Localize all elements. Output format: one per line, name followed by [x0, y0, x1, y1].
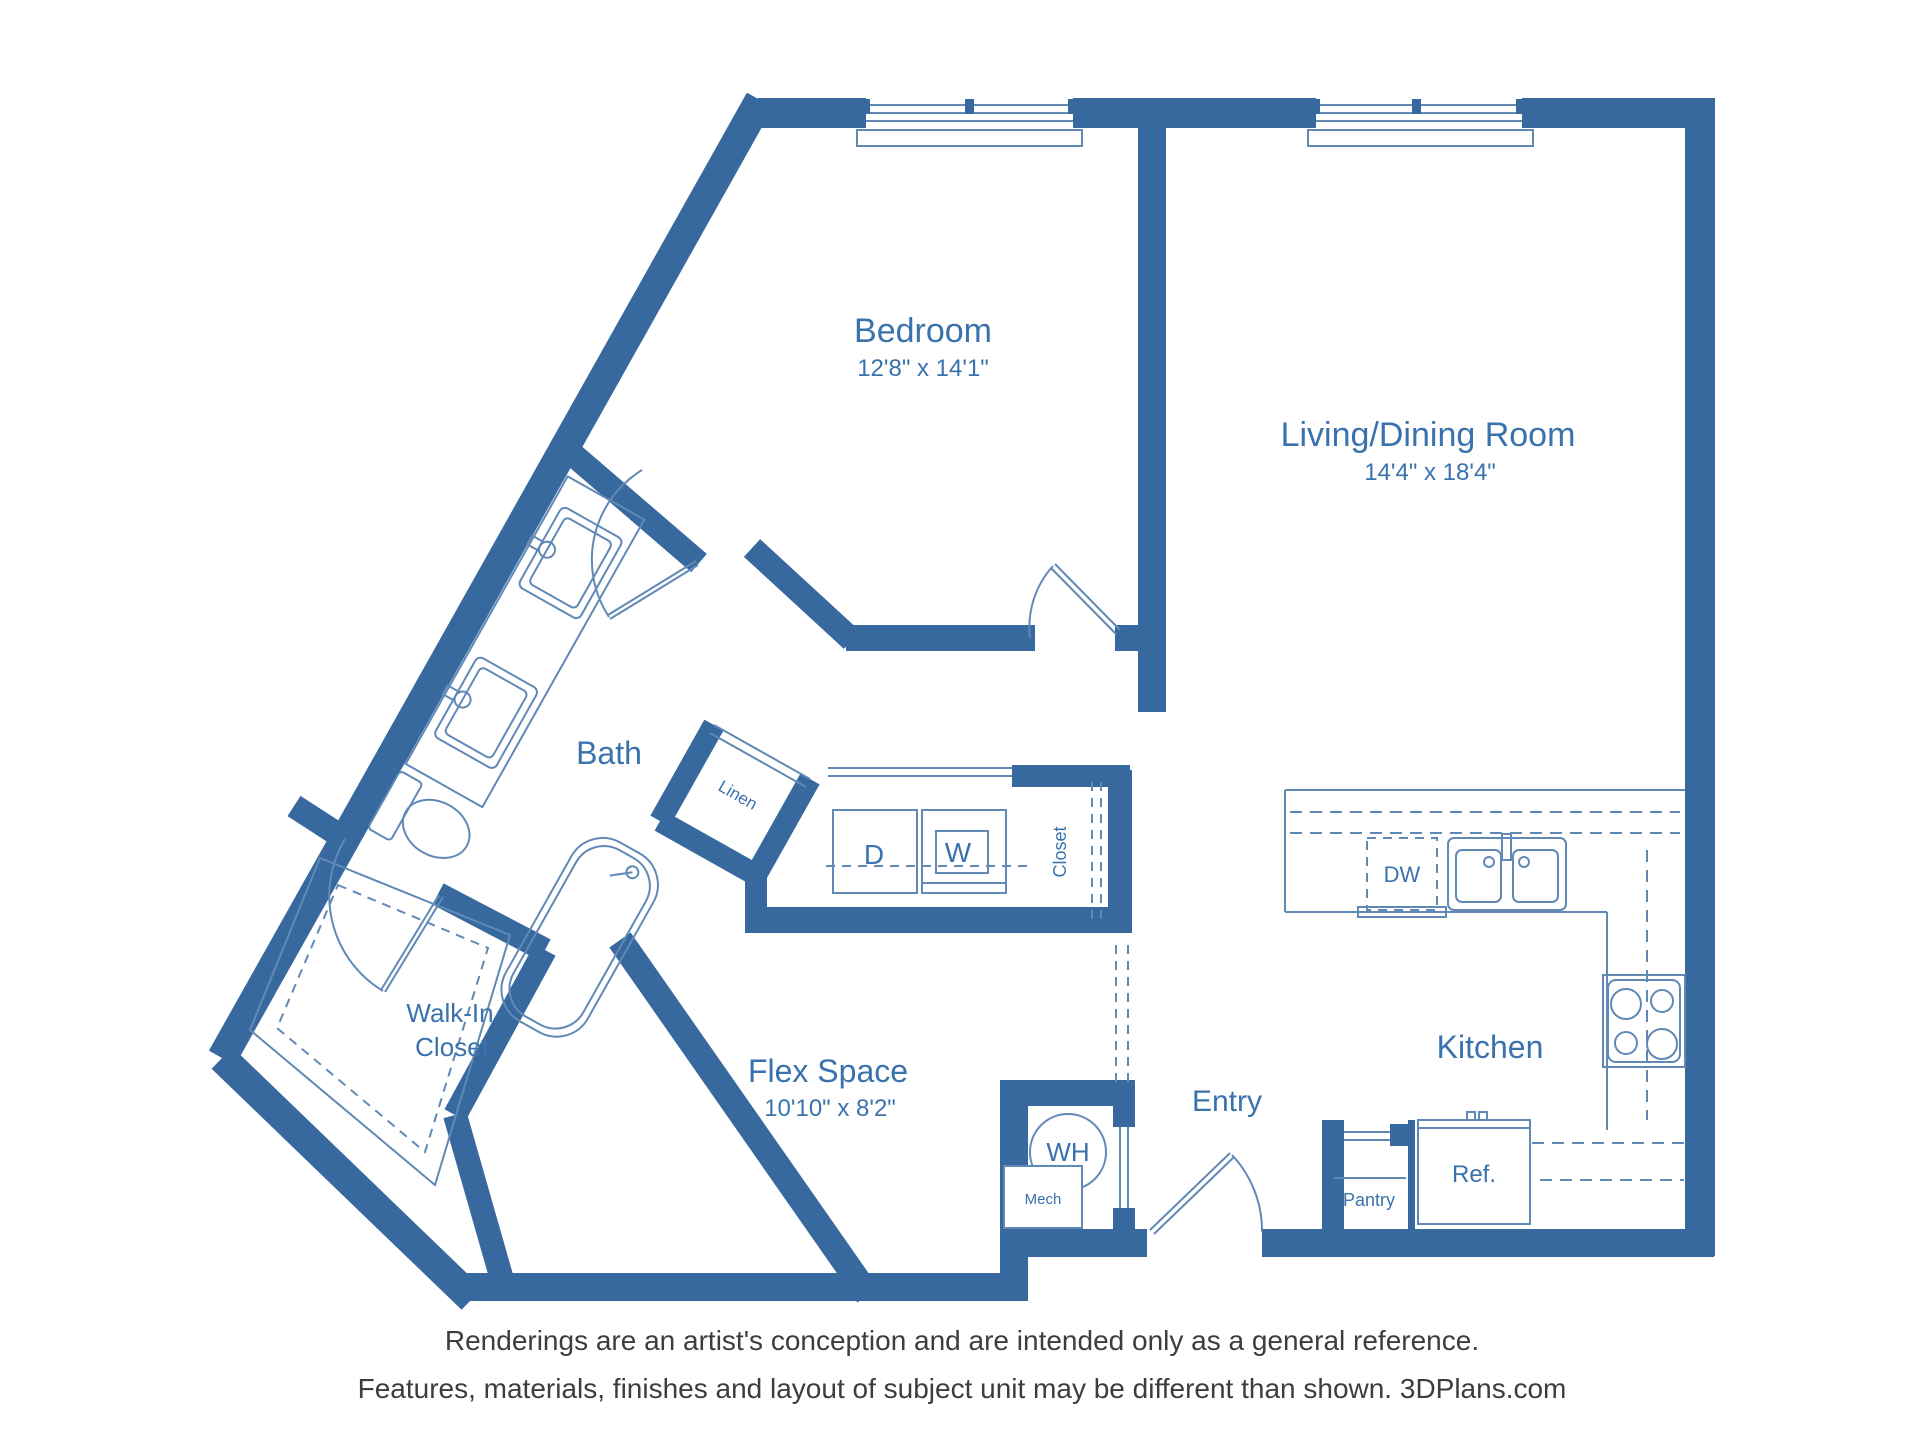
refrigerator: Ref. [1418, 1112, 1530, 1224]
kitchen-counter [1285, 790, 1685, 1180]
pantry-label: Pantry [1343, 1190, 1395, 1210]
bedroom-label: Bedroom [854, 312, 992, 350]
stove [1603, 975, 1685, 1067]
laundry-cased-opening [828, 768, 1012, 776]
entry-label: Entry [1192, 1085, 1262, 1118]
dishwasher: DW [1358, 838, 1446, 917]
disclaimer: Renderings are an artist's conception an… [358, 1325, 1567, 1404]
window-living-room [857, 98, 1082, 146]
walk-in-closet-label-line2: Closet [415, 1032, 489, 1062]
pantry: Pantry [1334, 1178, 1406, 1210]
walk-in-closet-label-line1: Walk-In [406, 998, 493, 1028]
mech-unit: Mech [1004, 1166, 1082, 1228]
washer-label: W [945, 837, 972, 868]
linen-closet: Linen [660, 725, 810, 875]
pantry-door [1344, 1132, 1390, 1140]
floor-plan-page: Linen [0, 0, 1920, 1440]
refrigerator-label: Ref. [1452, 1161, 1496, 1188]
entry-door [1150, 1153, 1262, 1234]
dryer: D [833, 810, 917, 893]
water-heater-closet-door [1120, 1127, 1128, 1208]
kitchen-sink [1448, 834, 1566, 910]
living-dining-label: Living/Dining Room [1281, 416, 1576, 454]
dishwasher-label: DW [1384, 862, 1421, 887]
flex-space-dims: 10'10" x 8'2" [764, 1095, 896, 1122]
hall-closet-label: Closet [1050, 826, 1070, 877]
linen-label: Linen [715, 777, 761, 814]
disclaimer-line1: Renderings are an artist's conception an… [445, 1325, 1479, 1356]
flex-entry-opening [1116, 945, 1128, 1088]
hall-closet: Closet [1050, 782, 1101, 926]
flex-space-label: Flex Space [748, 1053, 908, 1089]
kitchen-label: Kitchen [1437, 1029, 1544, 1065]
floor-plan-drawing: Linen [0, 0, 1920, 1440]
bedroom-door [1029, 564, 1120, 638]
disclaimer-line2: Features, materials, finishes and layout… [358, 1373, 1567, 1404]
water-heater-label: WH [1046, 1137, 1089, 1167]
washer: W [922, 810, 1006, 893]
living-dining-dims: 14'4" x 18'4" [1364, 459, 1496, 486]
mech-label: Mech [1025, 1191, 1062, 1208]
bedroom-dims: 12'8" x 14'1" [857, 355, 989, 382]
window-living-room-2 [1308, 98, 1533, 146]
bath-label: Bath [576, 735, 642, 771]
